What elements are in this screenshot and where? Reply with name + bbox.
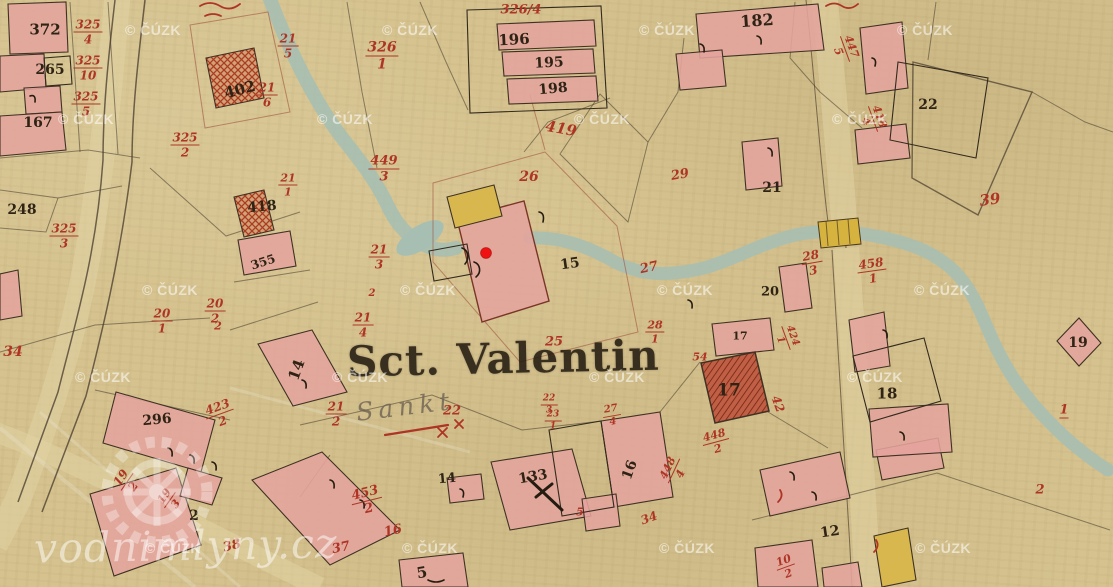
parcel-number: 216 xyxy=(257,82,278,109)
parcel-number: 3253 xyxy=(49,223,78,250)
cuzk-copyright-watermark: © ČÚZK xyxy=(589,369,645,385)
house-number: 18 xyxy=(877,387,898,402)
parcel-number: 2 xyxy=(369,289,376,299)
parcel-number: 1 xyxy=(1059,404,1068,419)
wooden-building-2 xyxy=(874,528,916,587)
parcel-number: 5 xyxy=(576,507,584,518)
cadastral-map-canvas[interactable]: 3722651673254325103255325232534022162152… xyxy=(0,0,1113,587)
parcel-number: 201 xyxy=(152,308,173,335)
house-number: 19 xyxy=(1068,336,1087,350)
house-number: 15 xyxy=(559,256,580,273)
cuzk-copyright-watermark: © ČÚZK xyxy=(382,22,438,38)
parcel-number: 3261 xyxy=(365,41,398,72)
house-number: 12 xyxy=(819,524,840,541)
house-number: 22 xyxy=(918,98,937,112)
cuzk-copyright-watermark: © ČÚZK xyxy=(659,540,715,556)
parcel-number: 26 xyxy=(519,170,538,184)
cuzk-copyright-watermark: © ČÚZK xyxy=(847,369,903,385)
house-number: 14 xyxy=(437,472,456,487)
parcel-number: 215 xyxy=(278,33,299,60)
parcel-number: 3254 xyxy=(73,19,102,46)
parcel-number: 34 xyxy=(3,345,22,359)
parcel-number: 32510 xyxy=(73,55,102,82)
house-number: 296 xyxy=(142,412,172,428)
parcel-number: 29 xyxy=(670,167,690,183)
house-number: 196 xyxy=(498,32,530,49)
cuzk-copyright-watermark: © ČÚZK xyxy=(75,369,131,385)
house-number: 21 xyxy=(762,181,781,195)
parcel-number: 2 xyxy=(1035,484,1044,497)
parcel-number: 39 xyxy=(979,191,1002,209)
cuzk-copyright-watermark: © ČÚZK xyxy=(332,369,388,385)
house-number: 167 xyxy=(23,116,52,130)
house-number: 17 xyxy=(717,383,741,400)
cuzk-copyright-watermark: © ČÚZK xyxy=(125,22,181,38)
cuzk-copyright-watermark: © ČÚZK xyxy=(574,111,630,127)
cuzk-copyright-watermark: © ČÚZK xyxy=(657,282,713,298)
house-number: 198 xyxy=(538,81,568,97)
house-number: 17 xyxy=(732,331,747,342)
cuzk-copyright-watermark: © ČÚZK xyxy=(400,282,456,298)
house-number: 20 xyxy=(761,286,779,299)
parcel-number: 2 xyxy=(214,321,222,332)
parcel-number: 27 xyxy=(639,260,659,276)
parcel-number: 211 xyxy=(278,173,297,198)
parcel-number: 54 xyxy=(692,352,707,363)
parcel-number: 326/4 xyxy=(501,4,542,17)
bridge xyxy=(818,218,861,248)
mill-location-marker[interactable] xyxy=(481,248,492,259)
parcel-number: 214 xyxy=(353,312,374,339)
cuzk-copyright-watermark: © ČÚZK xyxy=(317,111,373,127)
cuzk-copyright-watermark: © ČÚZK xyxy=(639,22,695,38)
cuzk-copyright-watermark: © ČÚZK xyxy=(832,111,888,127)
cuzk-copyright-watermark: © ČÚZK xyxy=(914,282,970,298)
house-number: 372 xyxy=(29,23,60,38)
parcel-number: 16 xyxy=(383,523,403,539)
parcel-number: 3252 xyxy=(170,132,199,159)
house-number: 265 xyxy=(35,63,64,77)
cuzk-copyright-watermark: © ČÚZK xyxy=(58,111,114,127)
house-number: 248 xyxy=(7,203,36,217)
house-number: 182 xyxy=(740,12,774,30)
cuzk-copyright-watermark: © ČÚZK xyxy=(145,540,201,556)
parcel-number: 213 xyxy=(369,244,390,271)
cuzk-copyright-watermark: © ČÚZK xyxy=(897,22,953,38)
parcel-number: 231 xyxy=(545,411,562,432)
cuzk-copyright-watermark: © ČÚZK xyxy=(402,540,458,556)
cuzk-copyright-watermark: © ČÚZK xyxy=(142,282,198,298)
parcel-number: 283 xyxy=(799,248,824,278)
parcel-number: 4493 xyxy=(368,155,399,184)
parcel-number: 4581 xyxy=(856,256,889,287)
house-number: 195 xyxy=(534,55,564,71)
house-number: 418 xyxy=(247,199,277,215)
parcel-number: 212 xyxy=(326,401,347,428)
parcel-number: 274 xyxy=(601,403,623,429)
cuzk-copyright-watermark: © ČÚZK xyxy=(915,540,971,556)
